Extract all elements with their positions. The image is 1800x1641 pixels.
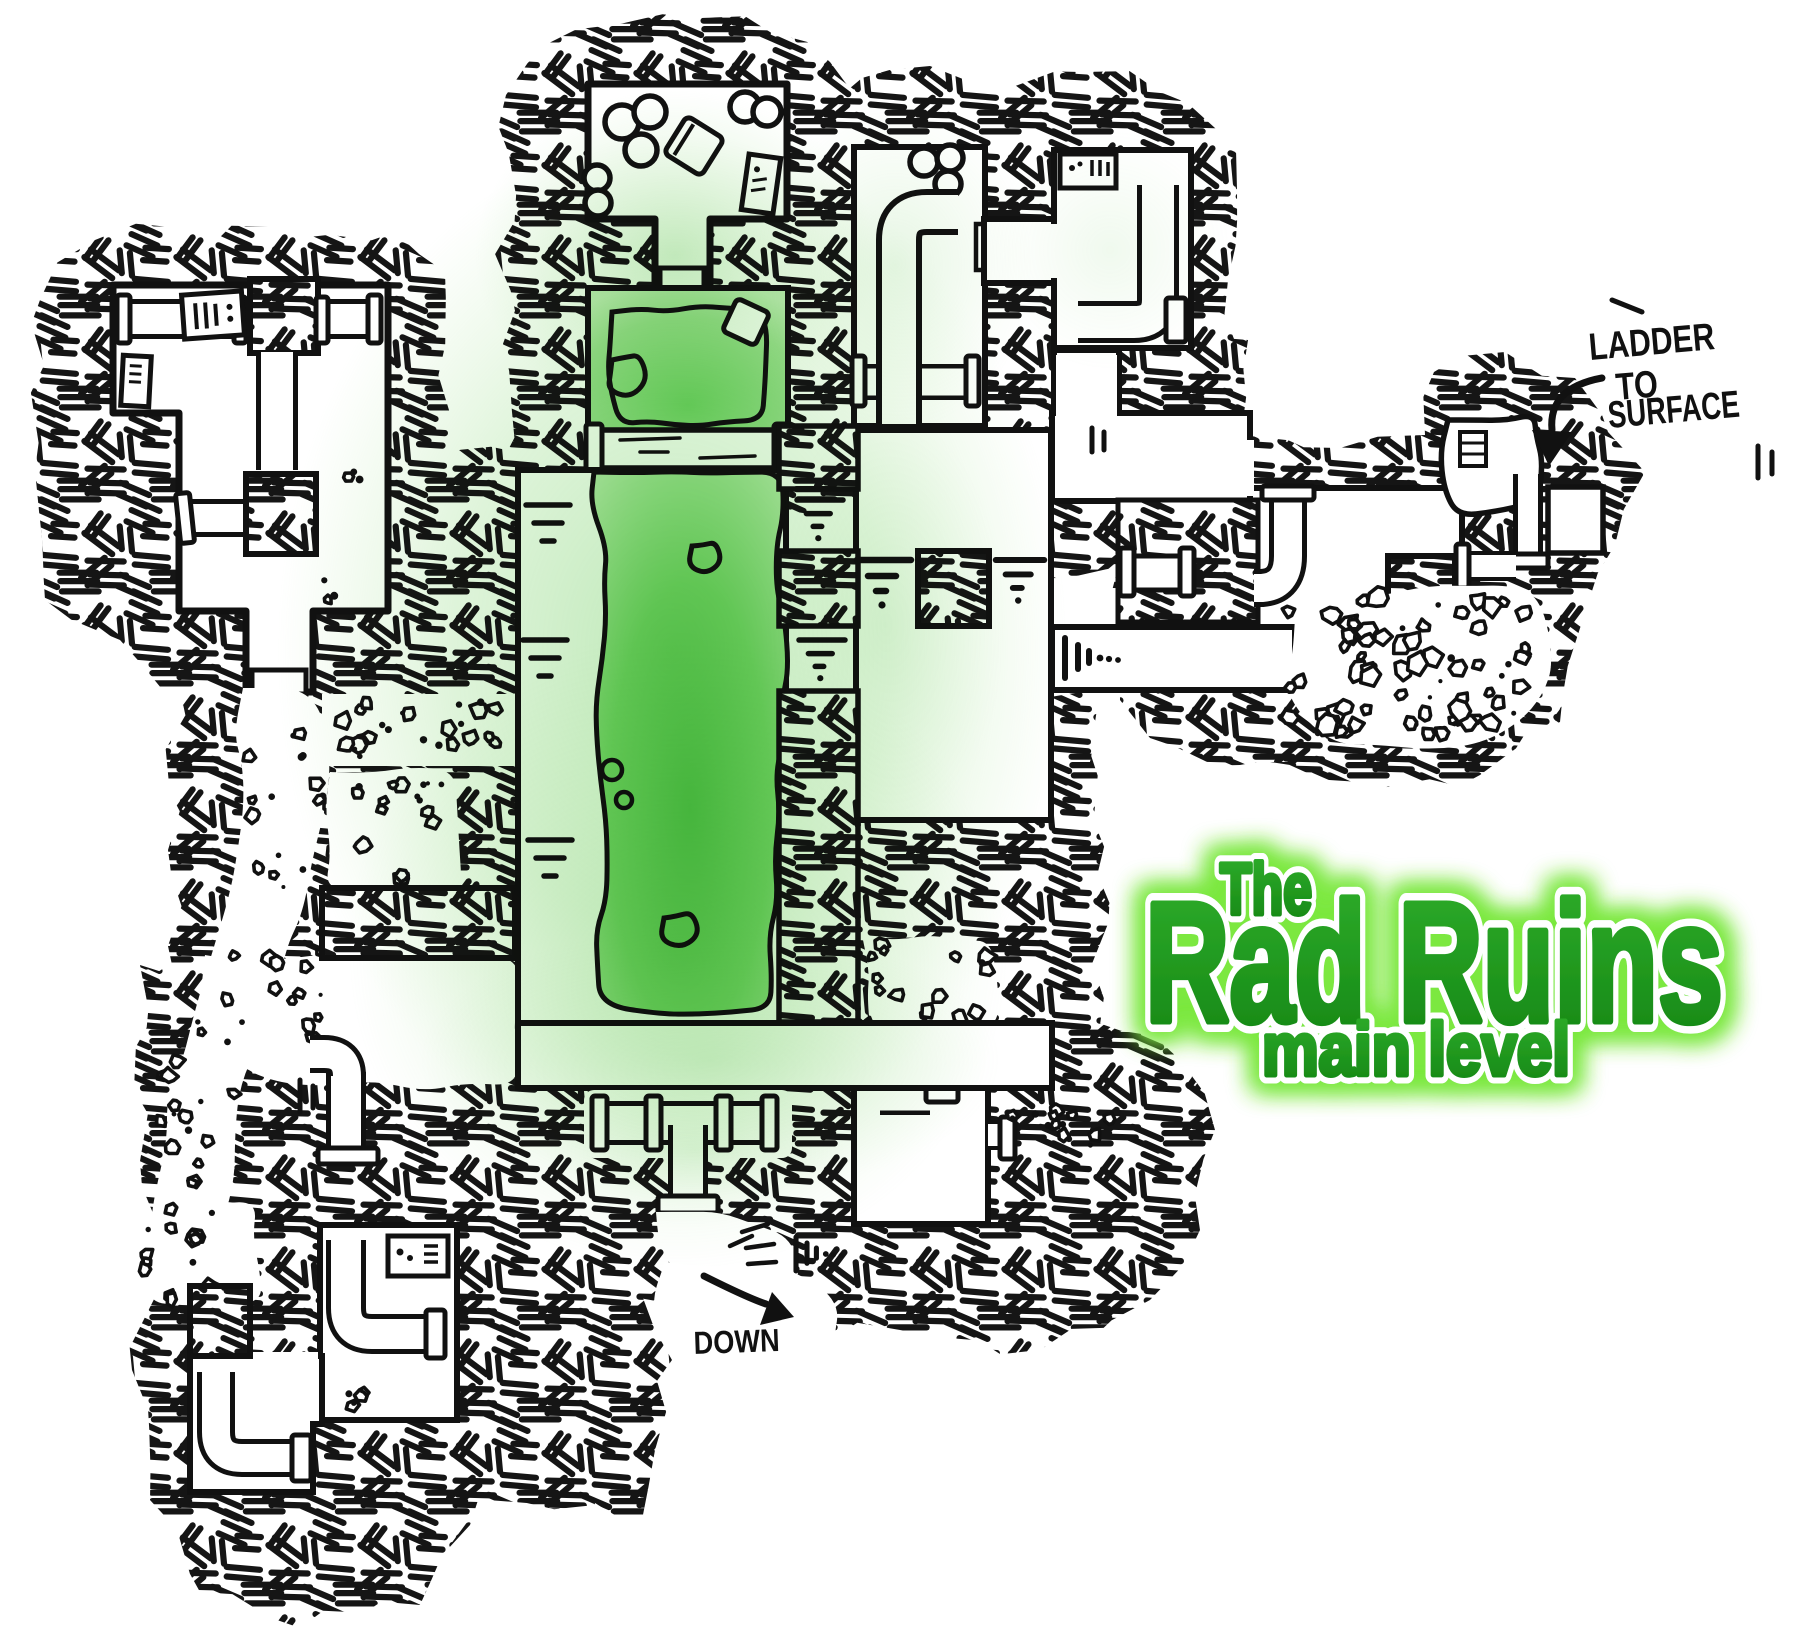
svg-text:DOWN: DOWN <box>693 1322 780 1361</box>
svg-text:main level: main level <box>1262 1008 1570 1091</box>
